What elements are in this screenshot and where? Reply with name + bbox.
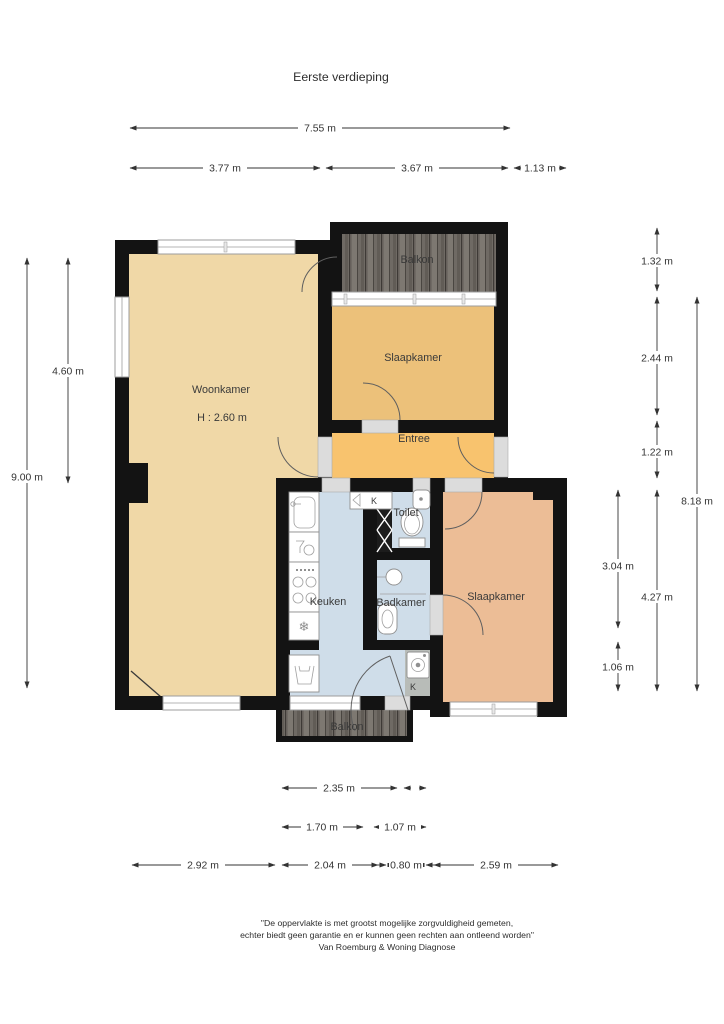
dim-top-right: 1.13 m <box>524 164 556 175</box>
dim-right-seg3: 1.22 m <box>641 448 673 459</box>
threshold-front-door <box>494 437 508 477</box>
wall <box>115 696 163 710</box>
label-woonkamer-height: H : 2.60 m <box>197 412 247 424</box>
dim-left-outer: 9.00 m <box>11 473 43 484</box>
wall <box>430 702 450 717</box>
wall <box>276 696 290 710</box>
wall <box>537 702 567 717</box>
wall <box>398 420 494 433</box>
floor-plan-canvas: Eerste verdieping <box>0 0 724 1024</box>
dim-bottom-r2a: 1.70 m <box>306 823 338 834</box>
wall <box>430 492 443 595</box>
shaft-box <box>377 509 392 552</box>
wall <box>115 240 158 254</box>
dim-left-inner: 4.60 m <box>52 367 84 378</box>
window-divider <box>462 294 465 304</box>
window-divider <box>413 294 416 304</box>
dim-right-inner2: 1.06 m <box>602 663 634 674</box>
wall <box>115 377 129 696</box>
footer-line2: echter biedt geen garantie en er kunnen … <box>240 930 534 940</box>
dim-tick <box>388 863 390 867</box>
wall-stub <box>289 640 319 650</box>
wall <box>553 478 567 717</box>
label-keuken: Keuken <box>310 596 347 608</box>
dim-bottom-r3a: 2.92 m <box>187 861 219 872</box>
wall <box>330 222 508 234</box>
wall <box>332 420 362 433</box>
wall <box>363 492 377 640</box>
wall <box>115 254 129 297</box>
closet-top: K <box>350 492 392 509</box>
dim-bottom-r3c: 0.80 m <box>390 861 422 872</box>
wall-notch <box>533 478 553 500</box>
wall <box>496 234 508 292</box>
dim-bottom-r2b: 1.07 m <box>384 823 416 834</box>
dim-right-seg2: 2.44 m <box>641 354 673 365</box>
wall <box>360 696 385 710</box>
wall <box>494 292 508 437</box>
dim-right-seg1: 1.32 m <box>641 257 673 268</box>
wall <box>430 478 445 492</box>
label-slaapkamer-bottom: Slaapkamer <box>467 591 525 603</box>
dim-right-inner1: 3.04 m <box>602 562 634 573</box>
label-slaapkamer-top: Slaapkamer <box>384 352 442 364</box>
footer-disclaimer: "De oppervlakte is met grootst mogelijke… <box>240 918 534 952</box>
window-divider <box>492 704 495 714</box>
dim-top-left: 3.77 m <box>209 164 241 175</box>
washing-machine-dot <box>416 663 421 668</box>
toilet-tank <box>399 538 425 547</box>
washing-machine-knob <box>423 654 426 657</box>
dim-bottom-r3b: 2.04 m <box>314 861 346 872</box>
threshold-woonkamer-entree <box>318 437 332 477</box>
wall <box>363 640 430 650</box>
shaft <box>377 509 392 552</box>
toilet-sink-drain <box>419 497 423 501</box>
kitchen-fixtures: ❄ <box>289 492 319 692</box>
label-balkon-top: Balkon <box>400 254 433 266</box>
threshold-slaapkamer-bottom <box>445 478 482 492</box>
dim-tick <box>423 863 425 867</box>
label-badkamer: Badkamer <box>376 597 426 609</box>
label-entree: Entree <box>398 433 430 445</box>
label-woonkamer: Woonkamer <box>192 384 250 396</box>
threshold-keuken <box>322 478 350 492</box>
wall <box>350 478 413 492</box>
threshold-balkon-door <box>385 696 410 710</box>
bathroom-sink-round <box>386 569 402 585</box>
closet-top-label: K <box>371 496 377 506</box>
snowflake-icon: ❄ <box>299 619 310 634</box>
kitchen-cabinet <box>289 655 319 692</box>
window-divider <box>344 294 347 304</box>
footer-line1: "De oppervlakte is met grootst mogelijke… <box>261 918 513 928</box>
dishwasher <box>289 532 319 562</box>
threshold-badkamer <box>430 595 443 635</box>
kitchen-sink-unit <box>289 492 319 532</box>
closet-bottom-label: K <box>410 682 416 692</box>
dim-bottom-r3d: 2.59 m <box>480 861 512 872</box>
footer-line3: Van Roemburg & Woning Diagnose <box>319 942 456 952</box>
dim-top-mid: 3.67 m <box>401 164 433 175</box>
dim-bottom-r1: 2.35 m <box>323 784 355 795</box>
dim-right-seg4: 4.27 m <box>641 593 673 604</box>
label-toilet: Toilet <box>393 507 418 519</box>
wall <box>276 492 290 696</box>
window-divider <box>224 242 227 252</box>
wall-chimney <box>129 463 148 503</box>
page-title: Eerste verdieping <box>293 70 389 84</box>
wall <box>276 736 413 742</box>
wall <box>318 240 332 437</box>
dim-right-total: 8.18 m <box>681 497 713 508</box>
wall <box>276 478 322 492</box>
dim-top-total: 7.55 m <box>304 124 336 135</box>
label-balkon-bottom: Balkon <box>330 721 363 733</box>
threshold-slaapkamer-top <box>362 420 398 433</box>
wall <box>240 696 276 710</box>
